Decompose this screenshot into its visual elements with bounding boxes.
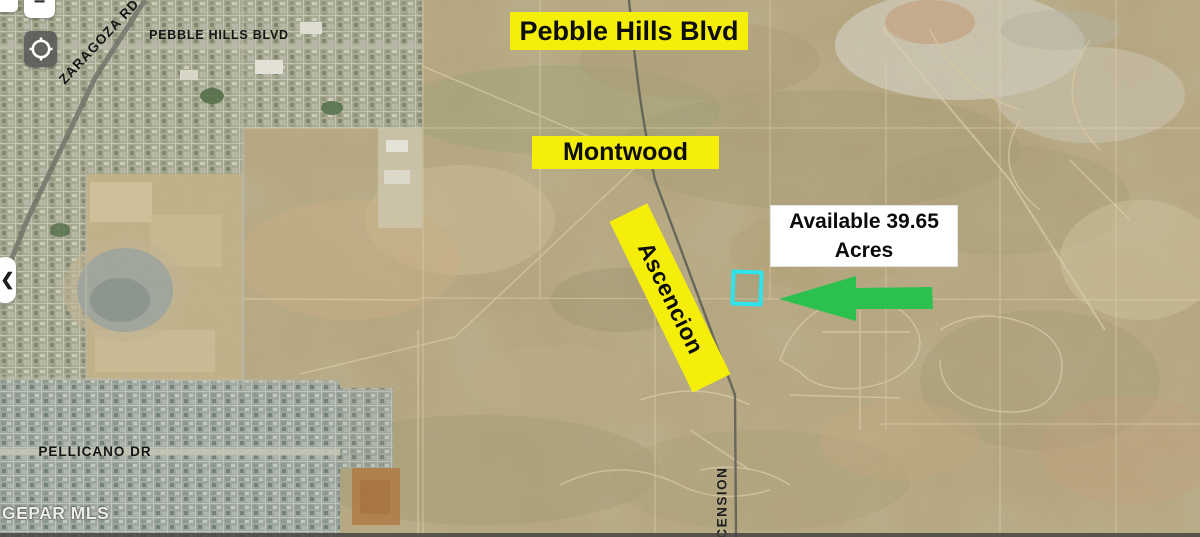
satellite-map-view[interactable]: ZARAGOZA RD PEBBLE HILLS BLVD PELLICANO … xyxy=(0,0,1200,537)
compass-icon xyxy=(28,36,54,62)
road-label-pebble-hills: PEBBLE HILLS BLVD xyxy=(146,27,292,42)
chevron-left-icon: ❮ xyxy=(0,270,14,290)
parcel-outline xyxy=(730,269,763,306)
cutoff-control xyxy=(0,0,18,12)
road-label-ascension-vertical: ASCENSION xyxy=(715,444,730,537)
callout-line1: Available 39.65 xyxy=(771,207,957,236)
zoom-out-button[interactable]: − xyxy=(24,0,55,18)
banner-pebble-hills-blvd: Pebble Hills Blvd xyxy=(510,12,748,50)
bottom-edge-strip xyxy=(0,533,1200,537)
available-acres-callout: Available 39.65 Acres xyxy=(770,205,958,267)
callout-line2: Acres xyxy=(771,236,957,265)
compass-button[interactable] xyxy=(24,31,57,67)
banner-montwood: Montwood xyxy=(532,136,719,169)
previous-photo-button[interactable]: ❮ xyxy=(0,257,16,303)
minus-icon: − xyxy=(34,0,46,14)
satellite-imagery xyxy=(0,0,1200,537)
road-label-pellicano: PELLICANO DR xyxy=(36,444,154,459)
mls-watermark: GEPAR MLS xyxy=(2,503,109,524)
